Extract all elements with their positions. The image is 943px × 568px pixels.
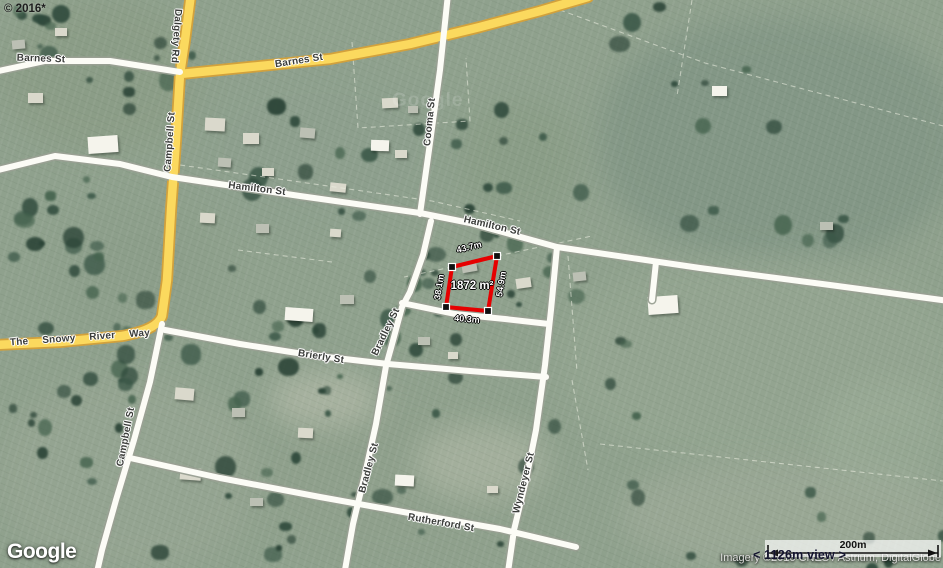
polygon-vertex-handle[interactable] [494,253,501,260]
google-logo[interactable]: Google [7,540,76,564]
measure-area-label: 1872 m² [451,280,494,292]
polygon-vertex-handle[interactable] [443,304,450,311]
measure-side-bottom: 40.3m [454,313,480,325]
satellite-map[interactable]: Google Barnes St Dalgety Rd Barnes St Ca… [0,0,943,568]
polygon-vertex-handle[interactable] [449,264,456,271]
polygon-vertex-handle[interactable] [485,308,492,315]
copyright-text: © 2016* [4,3,46,15]
view-scale-control[interactable]: < 1126m view > [753,548,846,562]
